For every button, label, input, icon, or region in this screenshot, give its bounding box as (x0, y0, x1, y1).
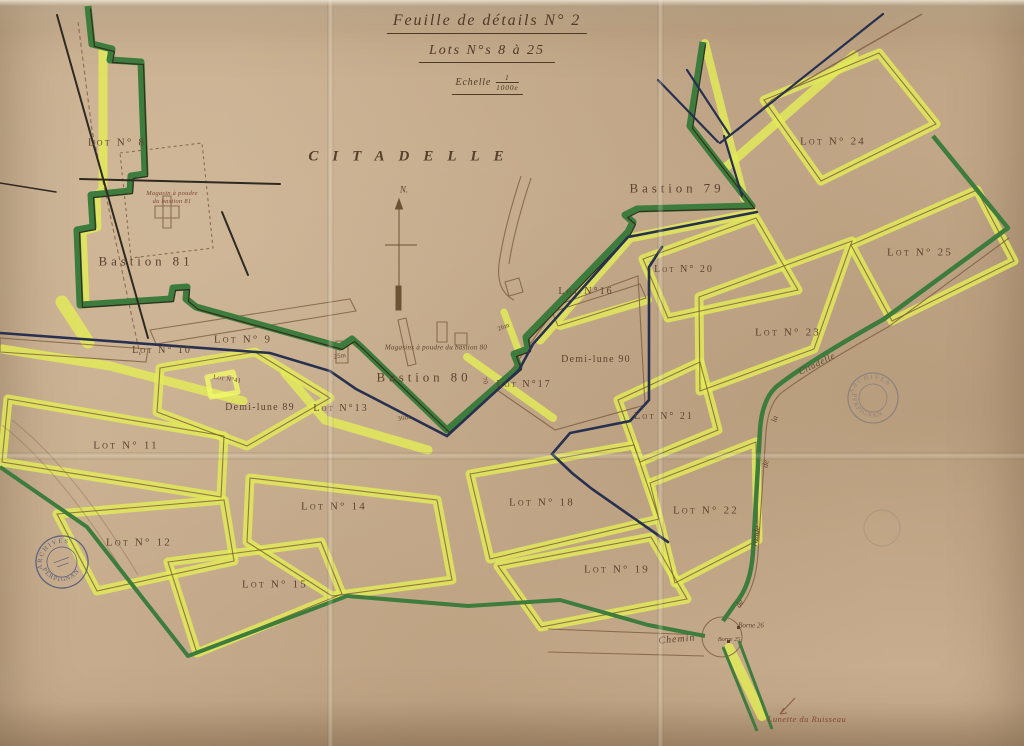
label-lot-24: Lot N° 24 (800, 137, 866, 148)
label-lot-23: Lot N° 23 (755, 328, 821, 339)
northeast-band (725, 55, 854, 168)
label-lot-21: Lot N° 21 (634, 412, 694, 422)
label-lot-8: Lot N° 8 (88, 138, 146, 149)
road-label-de-2: de (761, 460, 770, 469)
label-lot-16: Lot N°16 (558, 287, 613, 297)
label-lot-15: Lot N° 15 (242, 580, 308, 591)
navy-boundary-main (0, 212, 757, 436)
archive-stamp-faint (864, 510, 900, 546)
label-demi-lune-90: Demi-lune 90 (561, 355, 631, 365)
label-lot-14: Lot N° 14 (301, 502, 367, 513)
label-magazine-81-line2: du bastion 81 (153, 199, 192, 206)
scale-word: Echelle (456, 77, 492, 88)
north-arrow (385, 199, 417, 310)
label-lunette-ruisseau: Lunette du Ruisseau (768, 715, 847, 724)
black-stub (0, 183, 56, 192)
label-lot-19: Lot N° 19 (584, 565, 650, 576)
label-lot-13: Lot N°13 (313, 404, 368, 414)
title-block: Feuille de détails N° 2 Lots N°s 8 à 25 … (387, 12, 587, 95)
scale-indicator: Echelle11000e (452, 73, 523, 95)
label-borne-25: Borne 25 (718, 637, 740, 643)
lot17-band-2 (504, 312, 519, 352)
label-lot-22: Lot N° 22 (673, 506, 739, 517)
label-bastion-80: Bastion 80 (377, 371, 472, 384)
label-demi-lune-89: Demi-lune 89 (225, 403, 295, 413)
label-magazine-81-line1: Magasin à poudre (146, 191, 198, 198)
archive-stamp-right: ARCHIVES PERPIGNAN (842, 368, 902, 428)
sheet-title: Feuille de détails N° 2 (387, 12, 587, 34)
north-label: N. (400, 186, 408, 195)
label-lot-9: Lot N° 9 (214, 335, 272, 346)
label-lot-17: Lot N°17 (496, 380, 551, 390)
label-lot-18: Lot N° 18 (509, 498, 575, 509)
map-sheet: ARCHIVES PERPIGNAN ARCHIVES PERPIGNAN Fe… (0, 0, 1024, 746)
north-arrow-base (396, 286, 401, 310)
scale-fraction: 11000e (496, 73, 518, 92)
map-canvas: ARCHIVES PERPIGNAN ARCHIVES PERPIGNAN (0, 0, 1024, 746)
black-short (222, 212, 248, 275)
label-lot-20: Lot N° 20 (654, 265, 714, 275)
ramparts (0, 6, 1008, 731)
label-lot-12: Lot N° 12 (106, 538, 172, 549)
sheet-subtitle: Lots N°s 8 à 25 (419, 43, 555, 63)
svg-text:PERPIGNAN: PERPIGNAN (846, 392, 888, 422)
label-bastion-79: Bastion 79 (630, 182, 725, 195)
region-label-citadelle: CITADELLE (308, 150, 517, 165)
label-lot-11: Lot N° 11 (93, 441, 159, 452)
label-lot-25: Lot N° 25 (887, 248, 953, 259)
label-borne-26: Borne 26 (738, 623, 764, 630)
lunette-arrow (780, 698, 795, 714)
label-magazine-80: Magasins à poudre du bastion 80 (385, 345, 487, 352)
lot23-outline (699, 241, 852, 391)
label-lot-10: Lot N° 10 (132, 346, 192, 356)
ramp-road (499, 176, 531, 300)
small-building (505, 278, 523, 296)
label-bastion-81: Bastion 81 (99, 255, 194, 268)
black-horizontal (80, 179, 280, 184)
